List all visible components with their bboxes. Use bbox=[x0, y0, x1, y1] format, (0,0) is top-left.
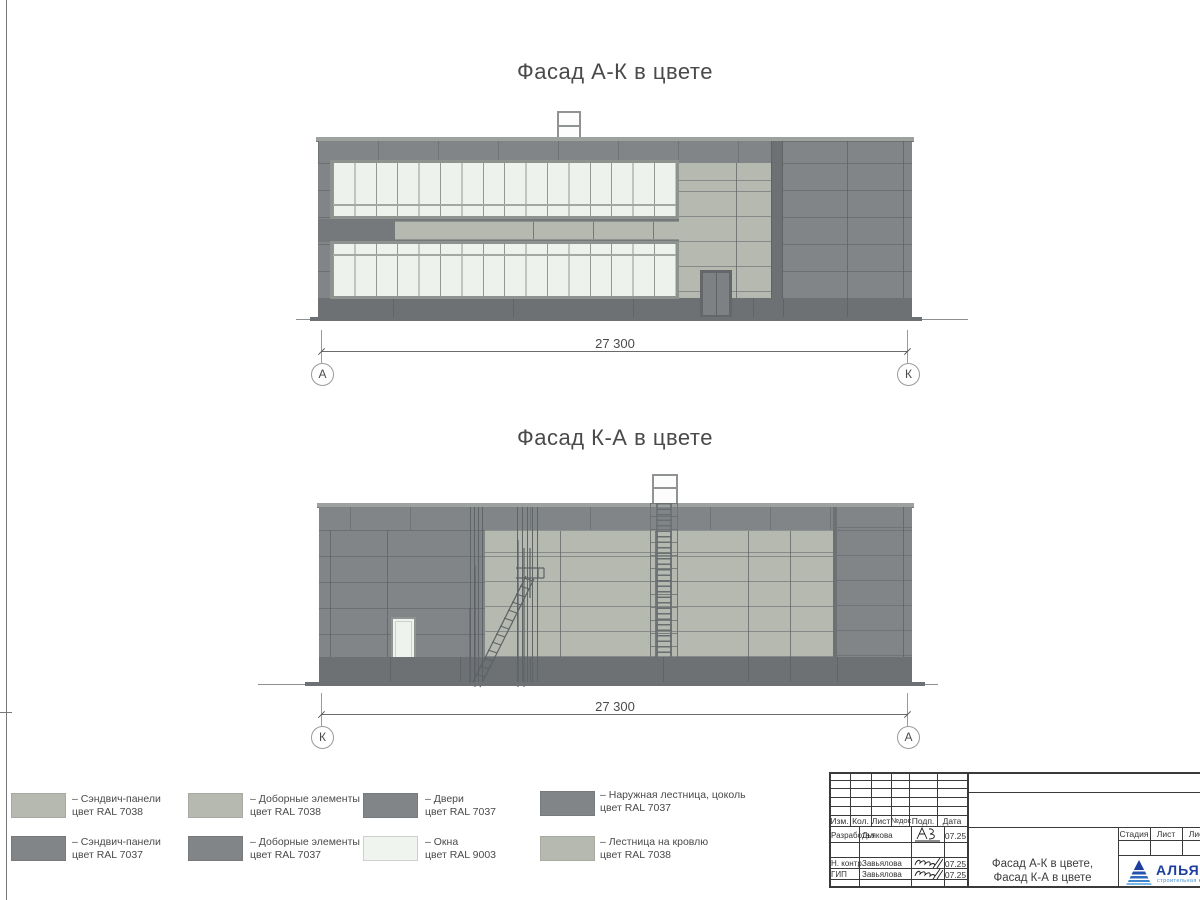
facade-ka-building bbox=[319, 503, 912, 683]
legend-label: – Доборные элементыцвет RAL 7037 bbox=[250, 836, 360, 861]
lower-window-panes bbox=[333, 256, 676, 296]
upper-window-transom bbox=[333, 206, 676, 216]
doc-title: Фасад А-К в цвете, Фасад К-А в цвете bbox=[967, 857, 1118, 885]
ground-line-thick bbox=[305, 682, 925, 686]
axis-marker-k: К bbox=[897, 363, 920, 386]
external-staircase bbox=[460, 538, 555, 688]
rev-col-ndok: №док bbox=[891, 816, 909, 825]
logo-name: АЛЬЯНС bbox=[1156, 862, 1200, 878]
row-role: ГИП bbox=[831, 870, 847, 879]
sheets-col: Лист bbox=[1182, 829, 1200, 839]
drawing-sheet: Фасад А-К в цвете bbox=[0, 0, 1200, 900]
legend-swatch bbox=[188, 836, 243, 861]
entrance-door bbox=[700, 270, 732, 318]
axis-marker-a: А bbox=[311, 363, 334, 386]
row-date: 07.25 bbox=[944, 831, 967, 841]
dim-line bbox=[321, 714, 908, 715]
legend-swatch bbox=[540, 836, 595, 861]
lower-window-transom bbox=[333, 244, 676, 254]
ext-line-left bbox=[321, 330, 322, 363]
legend-label: – Доборные элементыцвет RAL 7038 bbox=[250, 793, 360, 818]
row-date: 07.25 bbox=[944, 870, 967, 880]
legend-swatch bbox=[188, 793, 243, 818]
facade-ka-roof-hatch bbox=[652, 474, 678, 505]
legend-label: – Дверицвет RAL 7037 bbox=[425, 793, 496, 818]
spandrel-light-band bbox=[395, 221, 679, 240]
ext-line-left bbox=[321, 693, 322, 726]
upper-window-band bbox=[330, 160, 679, 219]
legend-label: – Сэндвич-панелицвет RAL 7037 bbox=[72, 836, 161, 861]
facade-ak-title: Фасад А-К в цвете bbox=[415, 59, 815, 85]
frame-left-line bbox=[6, 0, 7, 900]
row-name: Завьялова bbox=[862, 870, 902, 879]
row-date: 07.25 bbox=[944, 859, 967, 869]
axis-marker-k: К bbox=[311, 726, 334, 749]
rev-col-kol: Кол. bbox=[850, 816, 871, 826]
rev-col-izm: Изм. bbox=[829, 816, 850, 826]
right-section-panels bbox=[837, 507, 912, 660]
dim-line bbox=[321, 351, 908, 352]
legend-label: – Окнацвет RAL 9003 bbox=[425, 836, 496, 861]
row-name: Завьялова bbox=[862, 859, 902, 868]
company-logo: АЛЬЯНС строительная компания bbox=[1126, 860, 1200, 886]
ext-line-right bbox=[907, 693, 908, 726]
legend-swatch bbox=[363, 793, 418, 818]
sheet-col: Лист bbox=[1150, 829, 1182, 839]
dim-value: 27 300 bbox=[465, 699, 765, 714]
legend-label: – Лестница на кровлюцвет RAL 7038 bbox=[600, 836, 708, 861]
legend-swatch bbox=[11, 836, 66, 861]
facade-ak-building bbox=[318, 137, 912, 320]
signature bbox=[913, 868, 943, 880]
plinth-band bbox=[319, 657, 912, 683]
ext-line-right bbox=[907, 330, 908, 363]
right-section-panels bbox=[783, 141, 912, 298]
roof-ladder bbox=[650, 503, 678, 657]
legend-swatch bbox=[11, 793, 66, 818]
stage-col: Стадия bbox=[1118, 829, 1150, 839]
legend-label: – Наружная лестница, цокольцвет RAL 7037 bbox=[600, 789, 746, 814]
dim-value: 27 300 bbox=[465, 336, 765, 351]
ground-line-thick bbox=[310, 317, 922, 321]
logo-triangle-icon bbox=[1126, 860, 1152, 885]
legend-label: – Сэндвич-панелицвет RAL 7038 bbox=[72, 793, 161, 818]
signature bbox=[912, 825, 944, 843]
row-role: Н. контр. bbox=[831, 859, 864, 868]
legend-swatch bbox=[363, 836, 418, 861]
pilaster-strip bbox=[771, 141, 783, 298]
facade-ka-title: Фасад К-А в цвете bbox=[415, 425, 815, 451]
upper-window-panes bbox=[333, 163, 676, 204]
top-band-panels bbox=[319, 507, 912, 530]
lower-window-band bbox=[330, 241, 679, 299]
row-name: Дьякова bbox=[862, 831, 893, 840]
legend-swatch bbox=[540, 791, 595, 816]
frame-tick bbox=[0, 712, 12, 713]
logo-subtitle: строительная компания bbox=[1157, 878, 1200, 884]
rev-col-list: Лист bbox=[871, 816, 891, 826]
axis-marker-a: А bbox=[897, 726, 920, 749]
